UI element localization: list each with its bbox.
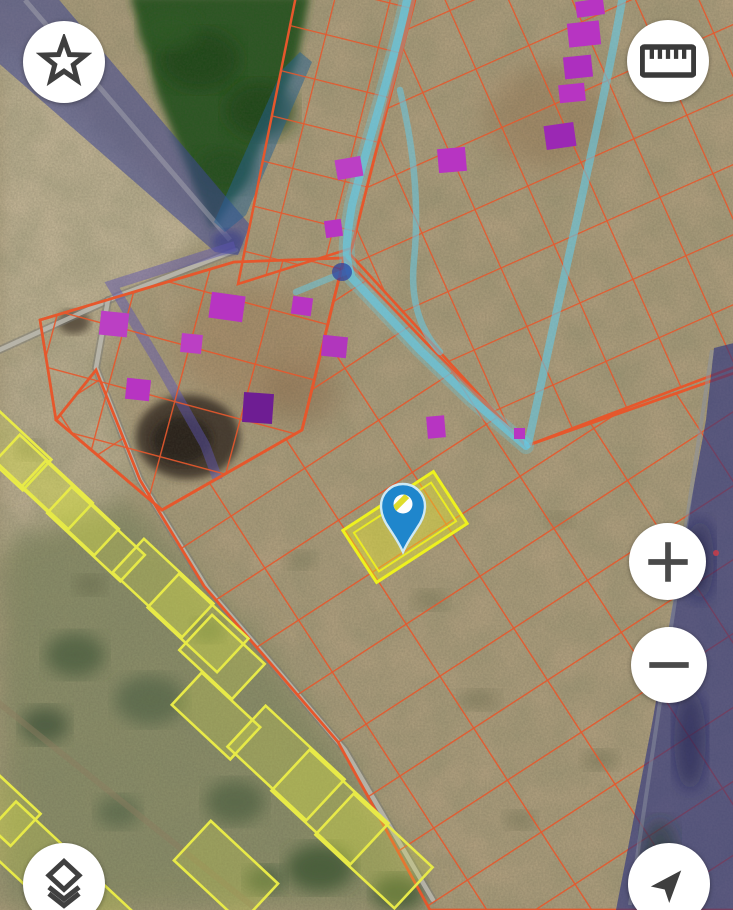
building-highlight [426, 415, 446, 438]
layers-icon [36, 856, 92, 910]
map-app [0, 0, 733, 910]
measure-button[interactable] [627, 20, 709, 102]
building-highlight [180, 333, 203, 354]
zoom-out-button[interactable] [631, 627, 707, 703]
building-highlight [514, 428, 525, 439]
building-highlight [567, 20, 601, 47]
plus-icon [641, 535, 695, 589]
building-highlight [558, 83, 586, 104]
building-highlight [543, 122, 576, 150]
building-highlight [324, 219, 343, 238]
building-highlight [563, 55, 593, 80]
favorite-button[interactable] [23, 21, 105, 103]
navigation-arrow-icon [641, 856, 697, 910]
building-highlight [437, 147, 467, 173]
building-highlight [208, 292, 245, 322]
building-highlight [125, 378, 151, 401]
zoom-in-button[interactable] [629, 523, 706, 600]
star-icon [36, 34, 92, 90]
building-highlight [242, 392, 274, 424]
building-highlight [321, 335, 348, 358]
ruler-icon [640, 33, 696, 89]
minus-icon [642, 638, 696, 692]
building-highlight [291, 296, 313, 317]
building-highlight [99, 311, 129, 338]
